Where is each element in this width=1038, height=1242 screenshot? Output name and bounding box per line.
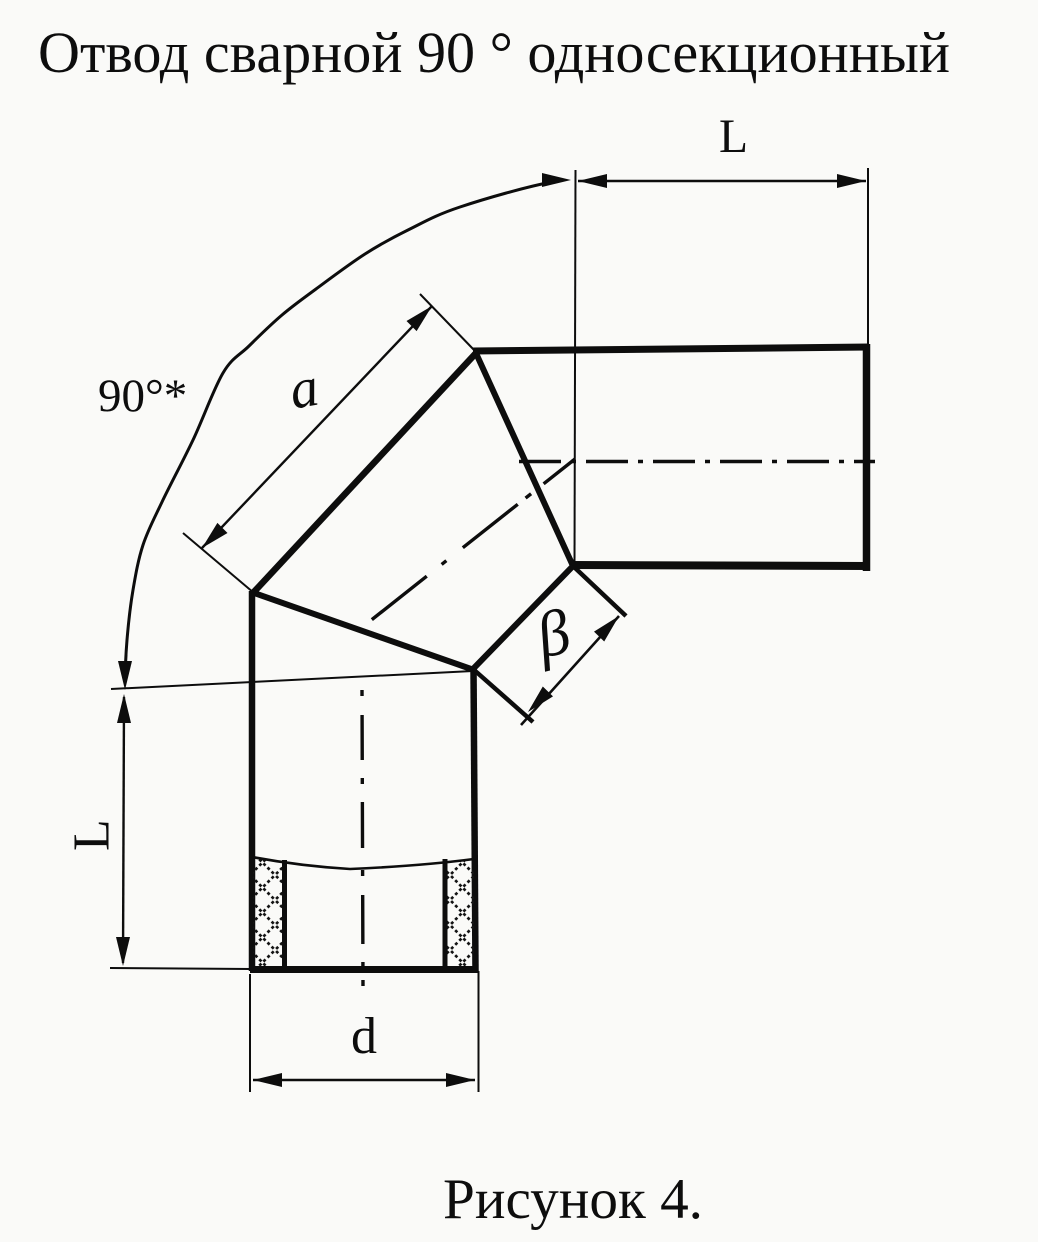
svg-text:L: L: [719, 111, 748, 163]
svg-text:90°*: 90°*: [98, 370, 187, 422]
svg-text:d: d: [351, 1008, 377, 1065]
svg-text:L: L: [64, 819, 121, 851]
svg-text:Рисунок 4.: Рисунок 4.: [443, 1168, 703, 1231]
svg-text:Отвод сварной 90 ° односекцион: Отвод сварной 90 ° односекционный: [38, 20, 950, 85]
